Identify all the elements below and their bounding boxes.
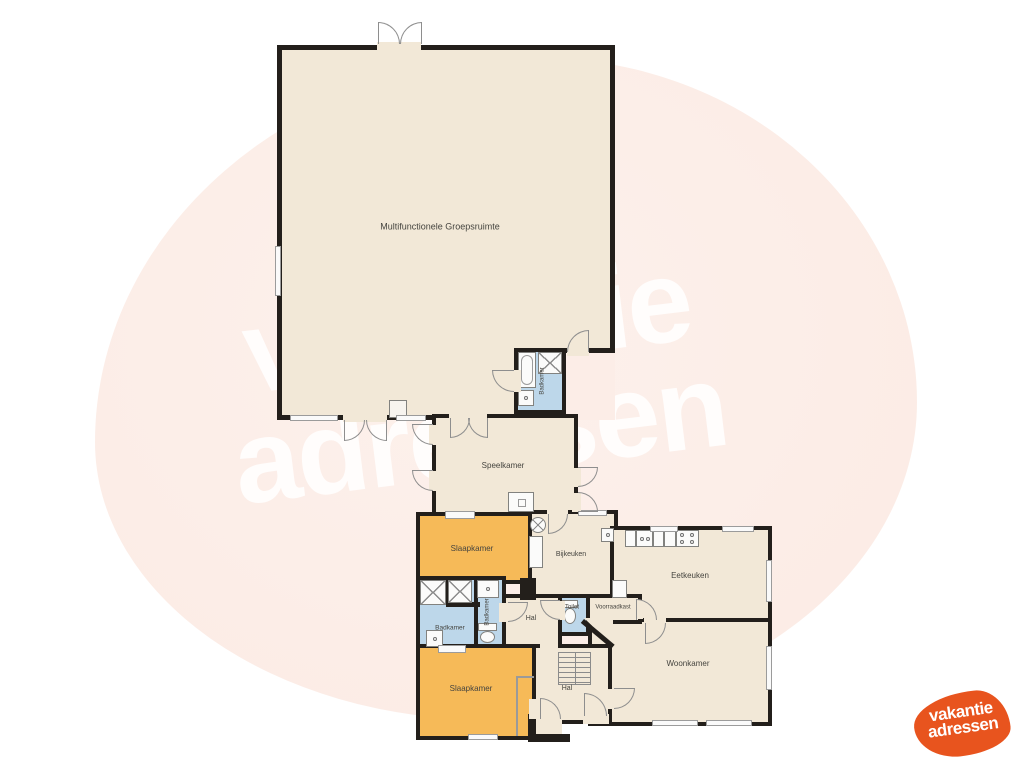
room-label-woonkamer: Woonkamer (667, 660, 710, 669)
window-icon (445, 511, 475, 519)
bijkeuken-counter (529, 536, 543, 568)
sink-icon (518, 390, 534, 406)
kitchen-counter-2 (653, 530, 664, 547)
speelkamer-cabinet (508, 492, 534, 512)
vakantieadressen-logo: vakantie adressen (908, 688, 1016, 762)
room-woonkamer (588, 618, 772, 726)
window-icon (650, 526, 678, 532)
outside-notch (566, 348, 615, 420)
door-icon (378, 22, 400, 44)
shower-icon (420, 580, 446, 605)
window-icon (766, 560, 772, 602)
window-icon (290, 415, 338, 421)
room-label-hal-midden: Hal (526, 614, 537, 622)
eetkeuken-cabinet (612, 580, 627, 598)
stairs-icon (558, 652, 591, 685)
room-label-badkamer-boven: Badkamer (539, 367, 546, 394)
window-icon (468, 734, 498, 740)
window-icon (652, 720, 698, 726)
closet-line-v (516, 678, 518, 736)
porch-wall-bottom (528, 734, 570, 742)
door-gap (529, 699, 539, 719)
sink-icon (477, 580, 499, 598)
room-label-groepsruimte: Multifunctionele Groepsruimte (380, 222, 500, 232)
window-icon (396, 415, 426, 421)
room-label-slaapkamer-boven: Slaapkamer (451, 545, 494, 554)
room-label-slaapkamer-beneden: Slaapkamer (450, 685, 493, 694)
window-icon (706, 720, 752, 726)
wall-junction (520, 578, 536, 600)
room-label-voorraadkast: Voorraadkast (595, 604, 630, 611)
room-label-eetkeuken: Eetkeuken (671, 572, 709, 581)
kitchen-counter-1 (625, 530, 636, 547)
washing-machine-icon (530, 517, 546, 533)
window-icon (766, 646, 772, 690)
floor-plan: vakantie adressen (0, 0, 1024, 768)
door-icon (400, 22, 422, 44)
room-label-hal-beneden: Hal (562, 684, 573, 692)
room-label-bijkeuken: Bijkeuken (556, 550, 586, 558)
window-icon (722, 526, 754, 532)
window-icon (438, 645, 466, 653)
room-label-badkamer-midden: Badkamer (484, 598, 491, 625)
bijkeuken-sink (601, 528, 614, 542)
shower-icon (448, 580, 472, 603)
stove-icon (676, 530, 699, 547)
room-label-speelkamer: Speelkamer (482, 462, 525, 471)
window-icon (275, 246, 281, 296)
closet-line-h (516, 676, 534, 678)
kitchen-sink-icon (636, 530, 653, 547)
hall-opening (540, 641, 558, 653)
kitchen-counter-3 (664, 530, 676, 547)
room-label-badkamer-links: Badkamer (435, 624, 465, 631)
room-label-toilet: Toilet (565, 604, 579, 611)
